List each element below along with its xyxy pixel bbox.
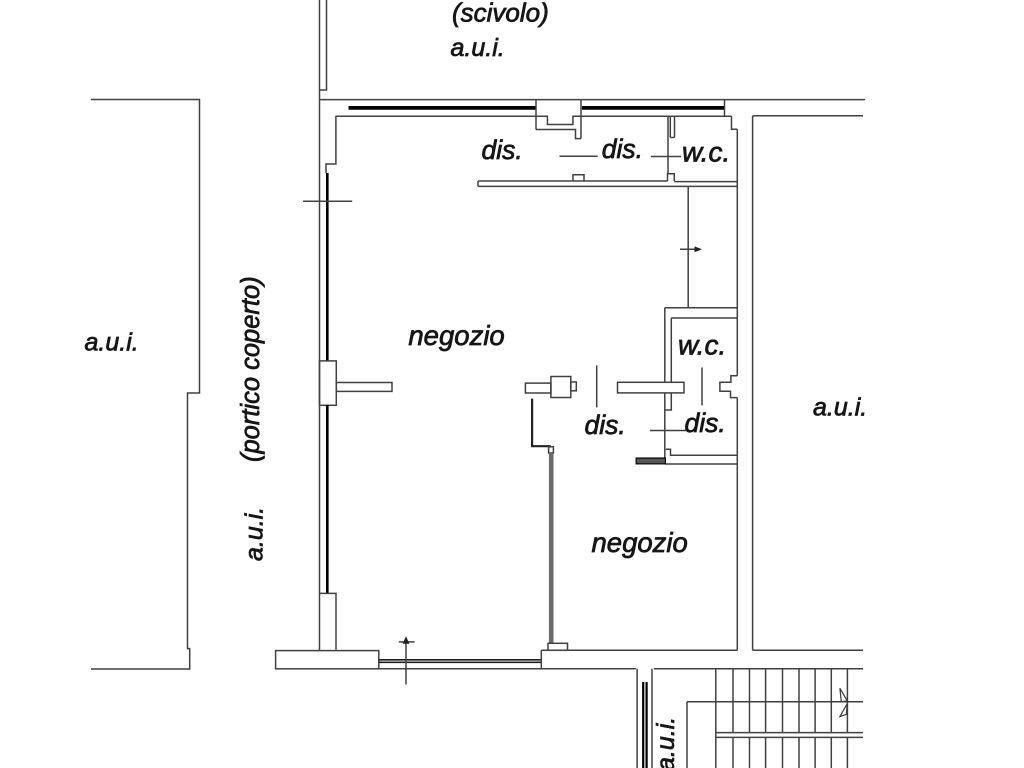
svg-text:a.u.i.: a.u.i.: [451, 34, 505, 62]
svg-text:w.c.: w.c.: [682, 137, 730, 168]
svg-text:dis.: dis.: [482, 135, 523, 165]
svg-text:dis.: dis.: [585, 410, 626, 440]
svg-text:negozio: negozio: [592, 527, 688, 558]
svg-text:a.u.i.: a.u.i.: [85, 329, 139, 357]
svg-text:a.u.i.: a.u.i.: [241, 507, 269, 561]
svg-text:dis.: dis.: [602, 134, 643, 164]
svg-text:w.c.: w.c.: [678, 330, 726, 361]
svg-text:dis.: dis.: [685, 408, 726, 438]
svg-text:a.u.i.: a.u.i.: [652, 717, 680, 768]
svg-text:(portico coperto): (portico coperto): [237, 276, 265, 462]
svg-text:negozio: negozio: [408, 320, 504, 351]
svg-text:a.u.i.: a.u.i.: [813, 394, 867, 422]
svg-text:(scivolo): (scivolo): [452, 0, 549, 28]
